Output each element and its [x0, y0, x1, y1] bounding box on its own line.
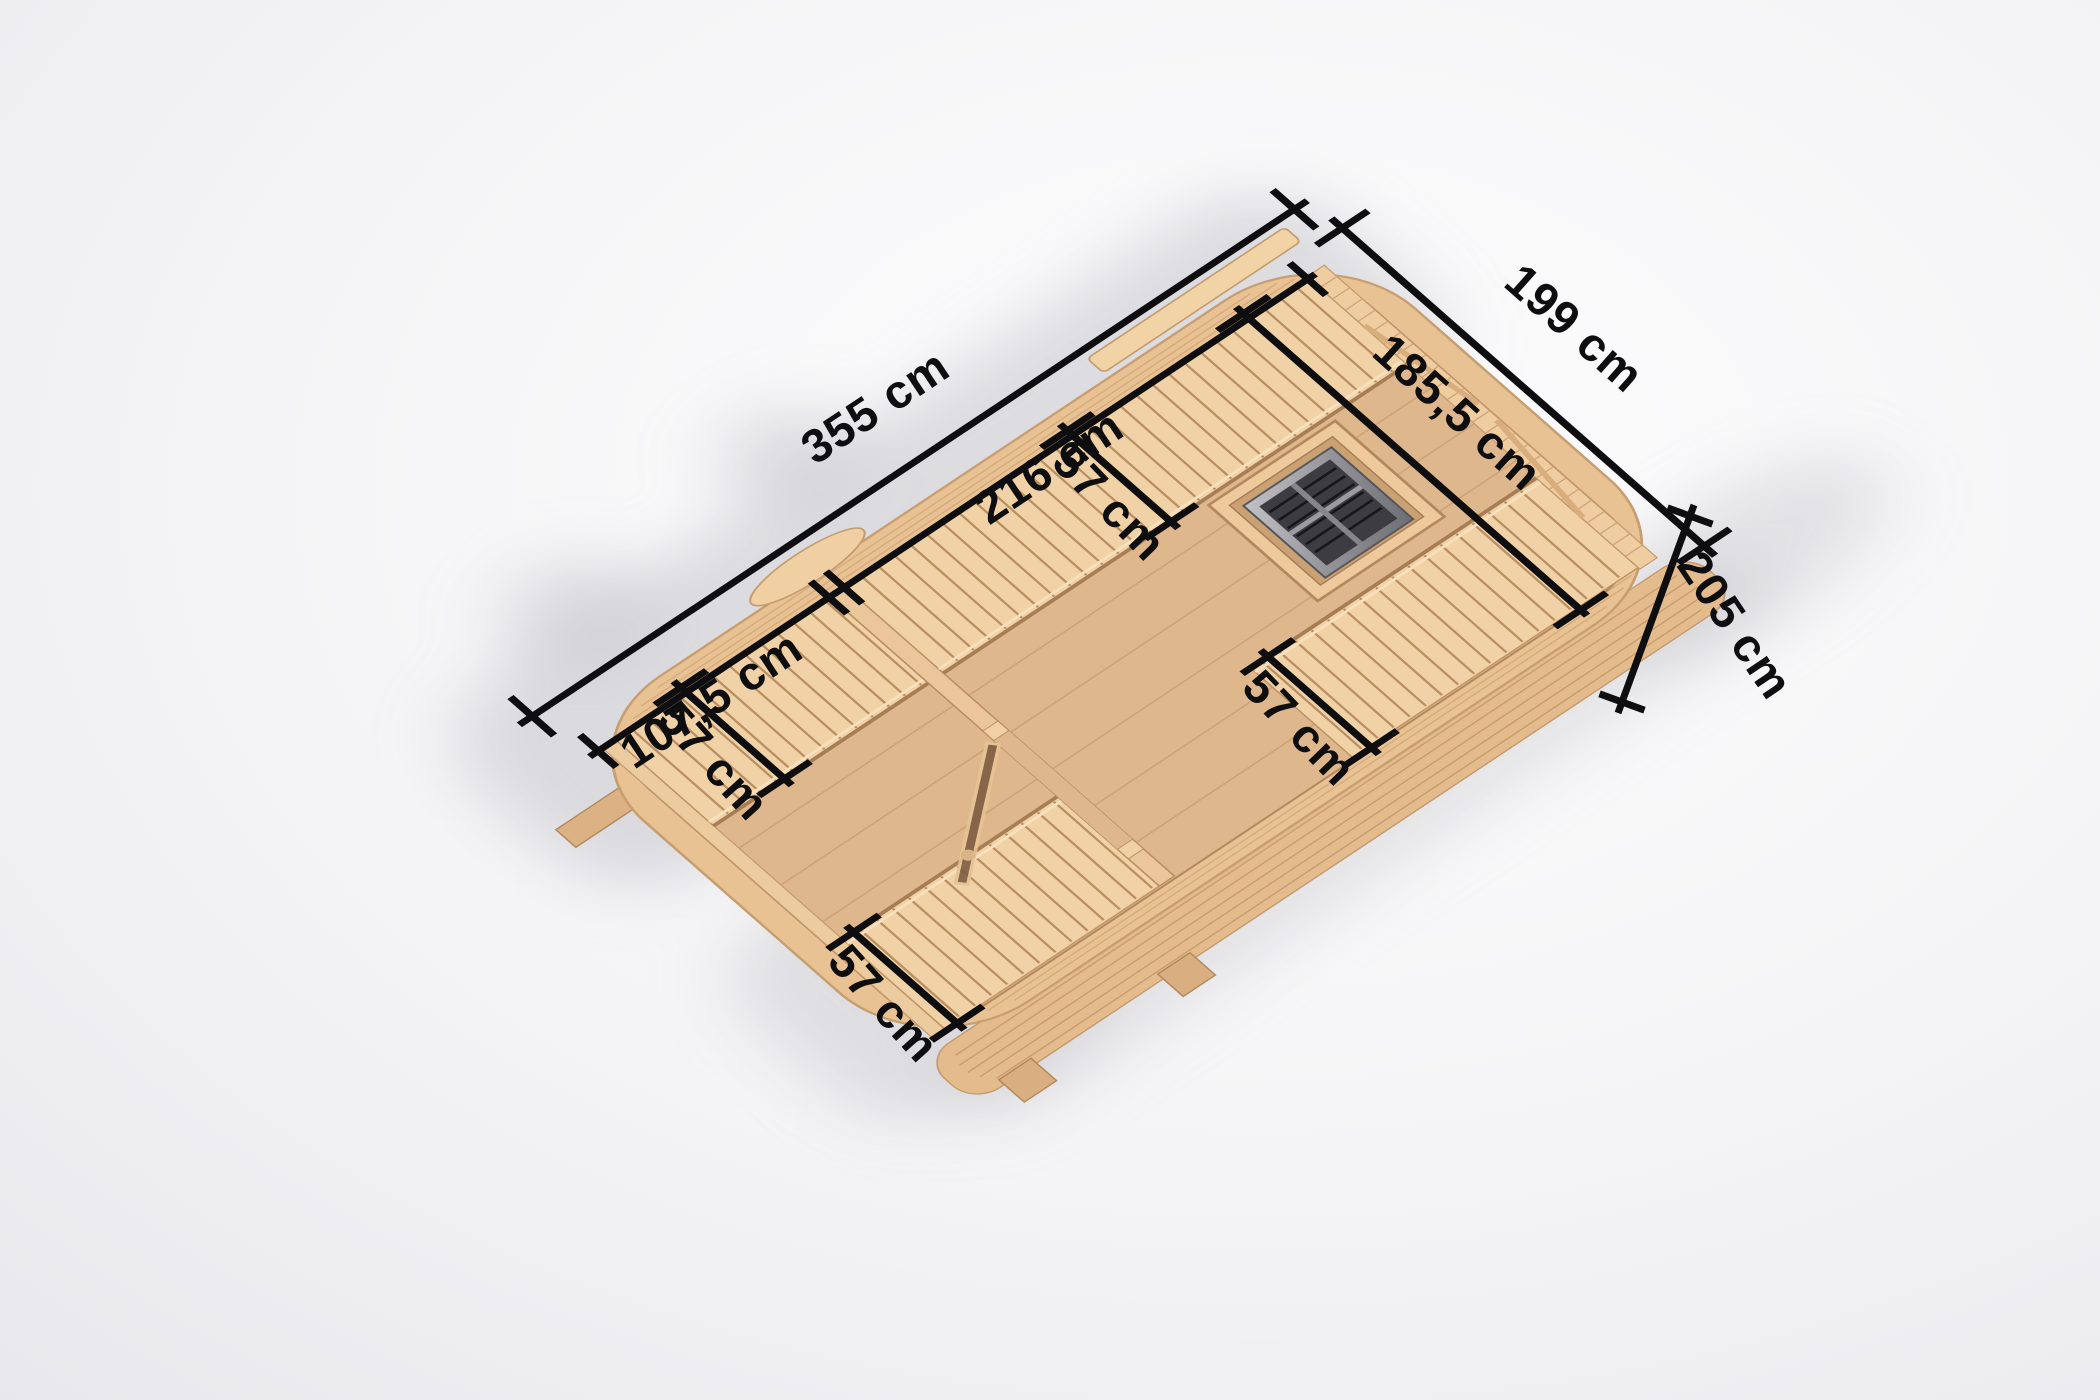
diagram-canvas: 355 cm 199 cm 205 cm 216 cm 185,5 cm 107… [0, 0, 2100, 1400]
sauna-dimension-diagram: 355 cm 199 cm 205 cm 216 cm 185,5 cm 107… [0, 0, 2100, 1400]
